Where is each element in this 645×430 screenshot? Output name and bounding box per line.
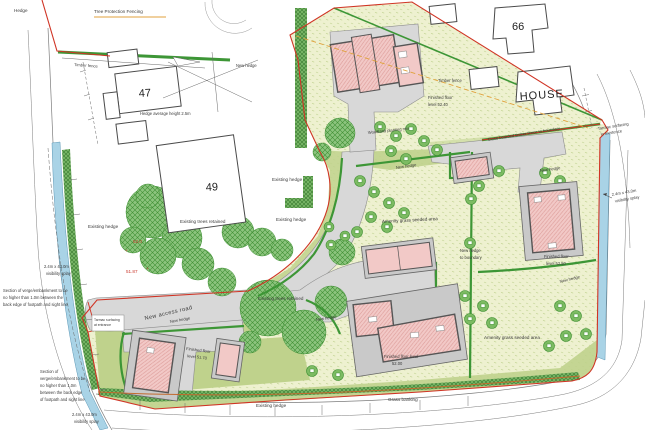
spot-level-52: 52.0 bbox=[133, 239, 142, 244]
svg-text:at entrance: at entrance bbox=[94, 323, 111, 327]
amenity-grass-label-2: Amenity grass seeded area bbox=[484, 335, 540, 340]
new-hedge-top-label: New hedge bbox=[236, 63, 257, 68]
house-66-number: 66 bbox=[512, 21, 524, 33]
svg-text:of footpath and sight line: of footpath and sight line bbox=[40, 397, 85, 402]
existing-trees-label-1: Existing trees retained bbox=[180, 219, 226, 224]
existing-hedge-left-label: Existing hedge bbox=[88, 224, 119, 229]
hedge-height-label: Hedge average height 2.5m bbox=[140, 111, 191, 116]
existing-trees-label-2: Existing trees retained bbox=[258, 296, 304, 301]
svg-text:level 52.50: level 52.50 bbox=[546, 261, 567, 266]
plot2-garage bbox=[451, 152, 494, 183]
splay-right-label: 2.4m x 43.0m visibility splay bbox=[611, 187, 640, 204]
svg-text:2.4m x 43.0m: 2.4m x 43.0m bbox=[44, 264, 69, 269]
existing-hedge-mid-label-1: Existing hedge bbox=[272, 177, 303, 182]
existing-hedge-vertical bbox=[295, 8, 307, 148]
svg-text:visibility splay: visibility splay bbox=[46, 271, 72, 276]
svg-text:no higher than 1.0m: no higher than 1.0m bbox=[40, 383, 77, 388]
svg-text:visibility splay: visibility splay bbox=[74, 419, 100, 424]
site-plan-drawing: Hedge Tree Protection Fencing Timber fen… bbox=[0, 0, 645, 430]
svg-text:to boundary: to boundary bbox=[460, 255, 483, 260]
svg-text:no higher than 1.0m between th: no higher than 1.0m between the bbox=[3, 295, 64, 300]
svg-text:between the back edge: between the back edge bbox=[40, 390, 83, 395]
timber-fence-left-label: Timber fence bbox=[74, 62, 99, 69]
house-47-number: 47 bbox=[138, 87, 151, 100]
spot-cross-2: + bbox=[146, 266, 149, 271]
site-plan-canvas: Hedge Tree Protection Fencing Timber fen… bbox=[0, 0, 645, 430]
plot2-building bbox=[519, 182, 583, 261]
svg-text:Tarmac surfacing: Tarmac surfacing bbox=[94, 318, 120, 322]
tree-protection-label: Tree Protection Fencing bbox=[94, 9, 143, 14]
svg-text:verge/embankment to be: verge/embankment to be bbox=[40, 376, 86, 381]
spot-level-5187: 51.87 bbox=[126, 269, 138, 274]
svg-text:Section of: Section of bbox=[40, 369, 59, 374]
svg-text:52.00: 52.00 bbox=[392, 361, 403, 366]
svg-text:level 52.40: level 52.40 bbox=[428, 102, 449, 107]
timber-fence-right-label: Timber fence bbox=[438, 78, 462, 83]
existing-hedge-bottom-label: Existing hedge bbox=[256, 403, 287, 408]
svg-text:New hedge: New hedge bbox=[460, 248, 481, 253]
svg-text:back edge of footpath and sigh: back edge of footpath and sight line bbox=[3, 302, 68, 307]
svg-text:Finished floor: Finished floor bbox=[544, 254, 569, 259]
existing-hedge-mid-label-2: Existing hedge bbox=[276, 217, 307, 222]
spot-cross-1: + bbox=[125, 248, 128, 253]
svg-text:2.4m x 43.0m: 2.4m x 43.0m bbox=[72, 412, 97, 417]
house-49-number: 49 bbox=[205, 181, 218, 194]
svg-text:Finished floor level: Finished floor level bbox=[384, 354, 418, 359]
tarmac-right-label: Tarmac surfacing in existence bbox=[597, 121, 630, 137]
svg-text:Finished floor: Finished floor bbox=[428, 95, 453, 100]
plot4-garage bbox=[211, 338, 244, 382]
grass-banking-label: Grass banking bbox=[388, 397, 418, 402]
verge-note-upper: Section of verge/embankment to be no hig… bbox=[3, 288, 68, 307]
svg-text:Section of verge/embankment to: Section of verge/embankment to be bbox=[3, 288, 68, 293]
hedge-label: Hedge bbox=[14, 8, 28, 13]
plot4-building bbox=[124, 330, 186, 401]
